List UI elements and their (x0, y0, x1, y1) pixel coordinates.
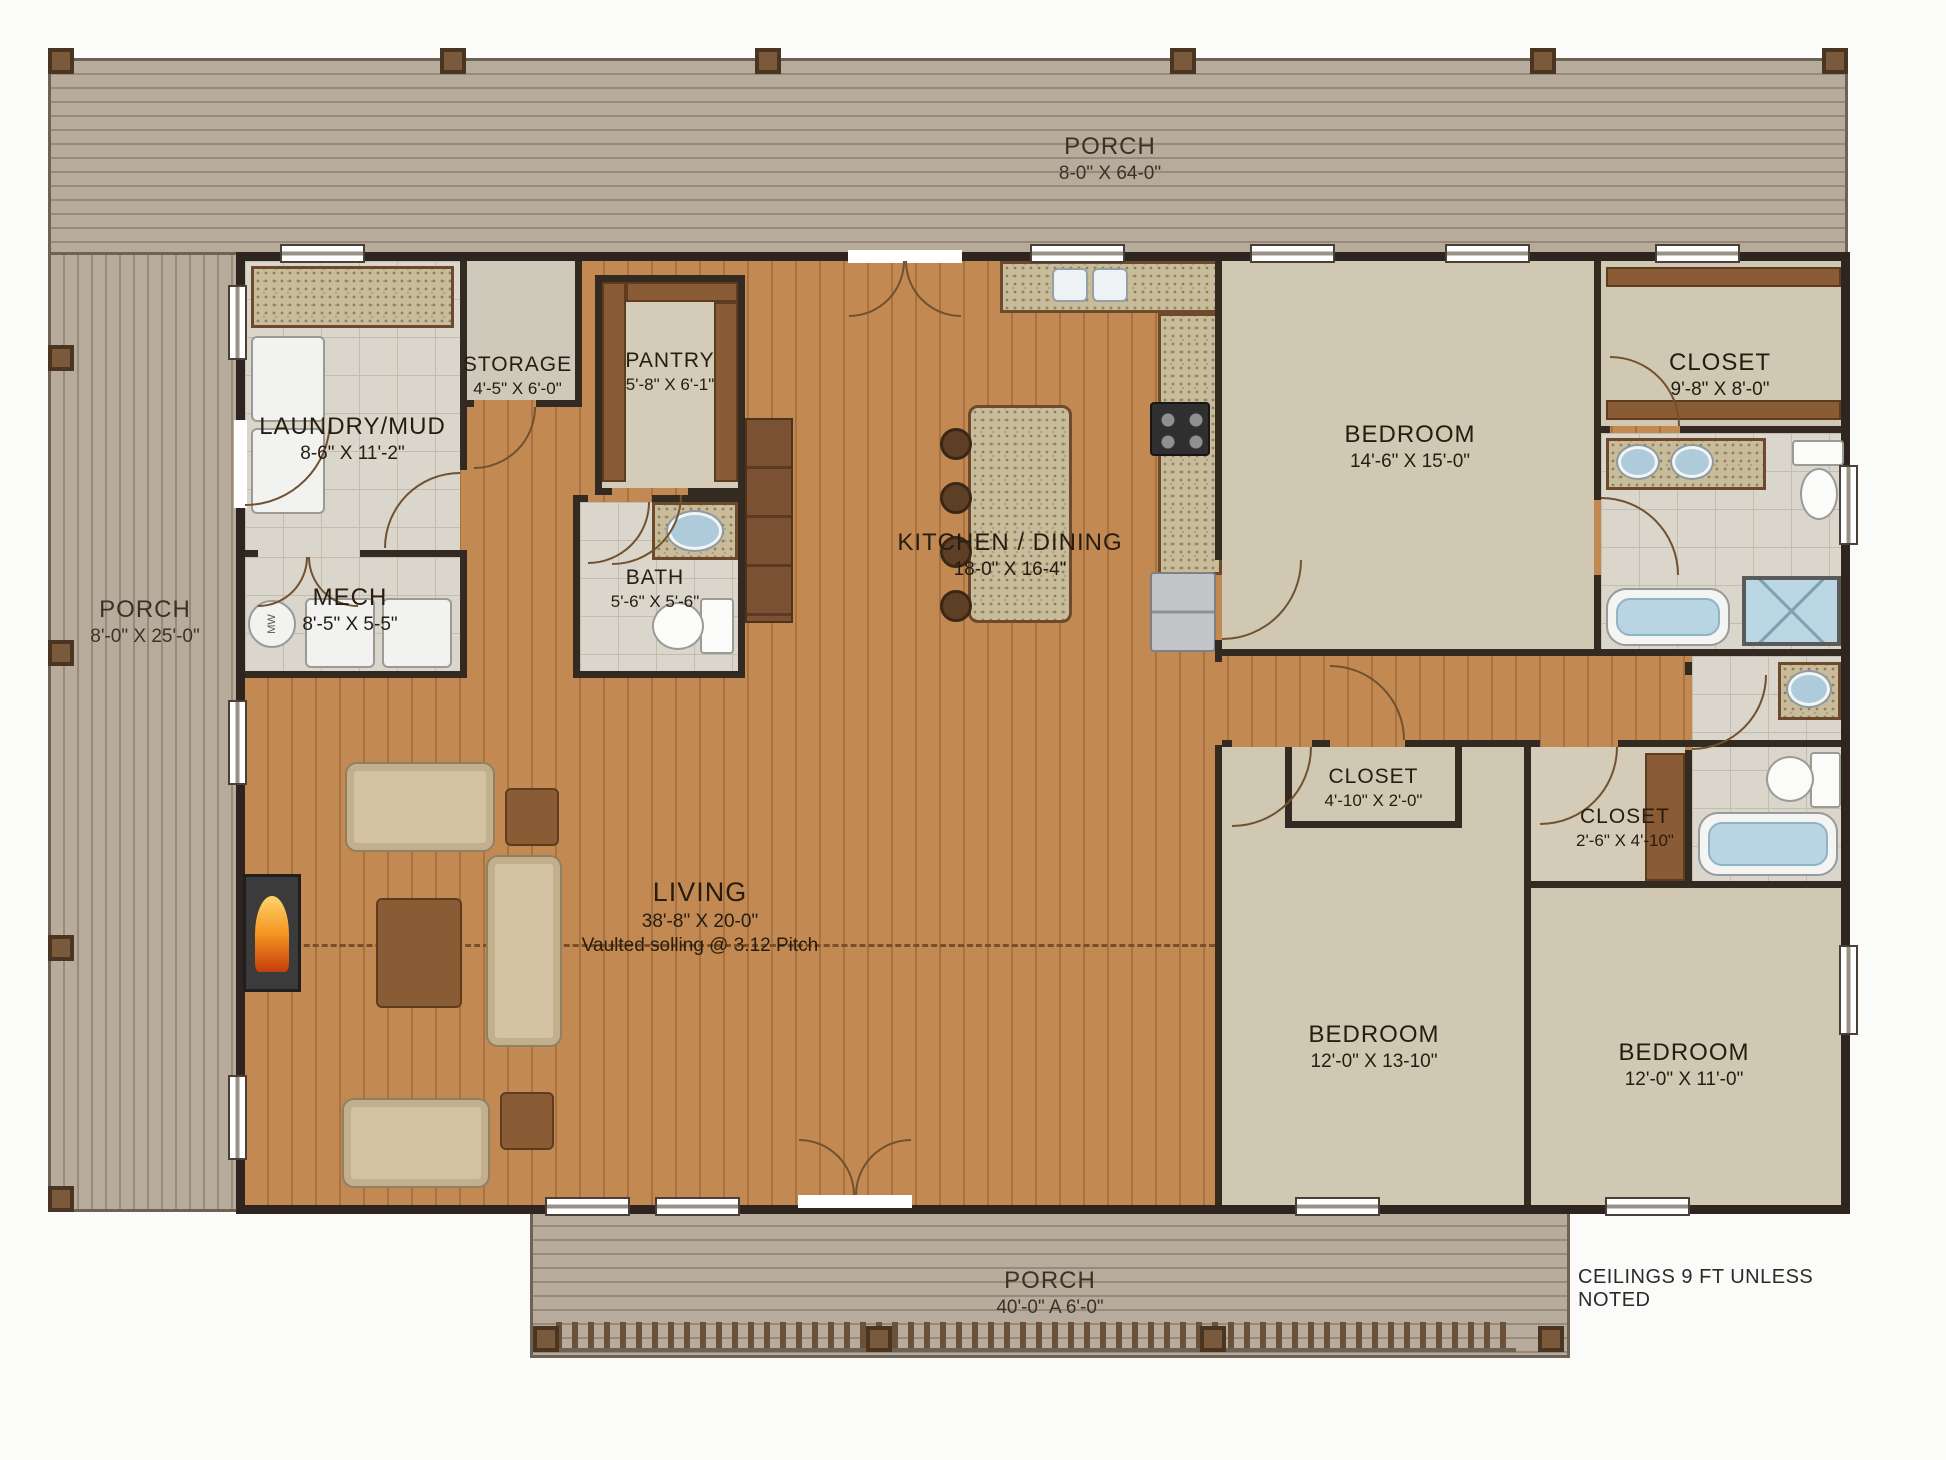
room-dims: 8-6" X 11'-2" (245, 442, 460, 466)
kitchen-sink-basin (1092, 268, 1128, 302)
floor-plan-canvas: MW PORCH 8-0" X 64-0" (0, 0, 1946, 1460)
shower (1742, 576, 1841, 646)
wall (1215, 745, 1222, 1205)
room-dims: 12'-0" X 13-10" (1254, 1050, 1494, 1074)
wall (245, 550, 258, 557)
master-sink (1618, 446, 1658, 478)
pantry-shelf (626, 282, 738, 302)
wall (1222, 740, 1232, 747)
room-name: BEDROOM (1254, 1020, 1494, 1050)
room-name: CLOSET (1620, 348, 1820, 378)
porch-post (533, 1326, 559, 1352)
room-dims: 14'-6" X 15'-0" (1290, 450, 1530, 474)
room-dims: 9'-8" X 8'-0" (1620, 378, 1820, 402)
room-name: CLOSET (1545, 804, 1705, 830)
porch-post (866, 1326, 892, 1352)
porch-post (1538, 1326, 1564, 1352)
wall (738, 495, 745, 678)
room-name: BEDROOM (1290, 420, 1530, 450)
loveseat (345, 762, 495, 852)
room-dims: 8'-5" X 5-5" (250, 613, 450, 637)
refrigerator (1150, 572, 1216, 652)
bathtub (1698, 812, 1838, 876)
wall (573, 671, 745, 678)
wall (595, 275, 745, 282)
room-label-kitchen: KITCHEN / DINING 18-0" X 16-4" (880, 528, 1140, 582)
range (1150, 402, 1210, 456)
porch-post (48, 1186, 74, 1212)
bar-stool (940, 482, 972, 514)
window (545, 1197, 630, 1216)
wall (1680, 426, 1841, 433)
bathtub (1606, 588, 1730, 646)
toilet (1792, 440, 1844, 466)
porch-post (48, 935, 74, 961)
toilet-bowl (1766, 756, 1814, 802)
room-label-closet-master: CLOSET 9'-8" X 8'-0" (1620, 348, 1820, 402)
room-name: CLOSET (1292, 764, 1455, 790)
room-dims: 8-0" X 64-0" (1010, 162, 1210, 186)
bar-stool (940, 590, 972, 622)
porch-post (1170, 48, 1196, 74)
room-label-pantry: PANTRY 5'-8" X 6'-1" (590, 348, 750, 396)
wall (1215, 261, 1222, 560)
wall (1222, 649, 1841, 656)
vaulted-ceiling-note: Vaulted solling @ 3.12 Pitch (560, 934, 840, 958)
wall (1455, 747, 1462, 828)
wall (1405, 740, 1540, 747)
room-name: BEDROOM (1564, 1038, 1804, 1068)
wall (1601, 426, 1610, 433)
window (1839, 945, 1858, 1035)
closet-shelf (1606, 267, 1841, 287)
window (228, 285, 247, 360)
wall (1312, 740, 1330, 747)
room-name: PANTRY (590, 348, 750, 374)
porch-post (440, 48, 466, 74)
room-name: BATH (580, 565, 730, 591)
room-label-porch-left: PORCH 8'-0" X 25'-0" (55, 595, 235, 649)
wall (1285, 821, 1462, 828)
room-dims: 2'-6" X 4'-10" (1545, 830, 1705, 851)
room-name: PORCH (950, 1266, 1150, 1296)
laundry-counter (251, 266, 454, 328)
porch-post (48, 48, 74, 74)
room-dims: 18-0" X 16-4" (880, 558, 1140, 582)
fireplace-flame-icon (255, 896, 289, 972)
room-label-living: LIVING 38'-8" X 20-0" Vaulted solling @ … (560, 876, 840, 957)
room-name: LAUNDRY/MUD (245, 412, 460, 442)
wall (595, 488, 612, 495)
master-sink (1672, 446, 1712, 478)
porch-post (1822, 48, 1848, 74)
room-name: LIVING (560, 876, 840, 910)
side-table (500, 1092, 554, 1150)
room-label-porch-top: PORCH 8-0" X 64-0" (1010, 132, 1210, 186)
room-dims: 5'-6" X 5'-6" (580, 591, 730, 612)
room-label-bedroom-master: BEDROOM 14'-6" X 15'-0" (1290, 420, 1530, 474)
room-label-porch-bottom: PORCH 40'-0" A 6'-0" (950, 1266, 1150, 1320)
wall (1524, 881, 1841, 888)
kitchen-sink-basin (1052, 268, 1088, 302)
room-dims: 4'-5" X 6'-0" (445, 378, 590, 399)
room-dims: 40'-0" A 6'-0" (950, 1296, 1150, 1320)
room-label-bedroom-right: BEDROOM 12'-0" X 11'-0" (1564, 1038, 1804, 1092)
porch-post (1530, 48, 1556, 74)
wall (1618, 740, 1841, 747)
room-label-laundry: LAUNDRY/MUD 8-6" X 11'-2" (245, 412, 460, 466)
window (1250, 244, 1335, 263)
washer (251, 336, 325, 422)
room-name: KITCHEN / DINING (880, 528, 1140, 558)
sofa (486, 855, 562, 1047)
wall (1685, 662, 1692, 675)
room-dims: 5'-8" X 6'-1" (590, 374, 750, 395)
room-name: PORCH (55, 595, 235, 625)
porch-railing (556, 1322, 1516, 1352)
wall (1594, 261, 1601, 500)
wall (1524, 747, 1531, 1205)
coffee-table (376, 898, 462, 1008)
room-label-storage: STORAGE 4'-5" X 6'-0" (445, 352, 590, 400)
kitchen-tall-cabinets (745, 418, 793, 623)
wall (573, 495, 580, 678)
wall (1215, 640, 1222, 662)
window (1445, 244, 1530, 263)
porch-post (1200, 1326, 1226, 1352)
door-opening (798, 1195, 912, 1208)
wall (1594, 575, 1601, 649)
room-dims: 8'-0" X 25'-0" (55, 625, 235, 649)
room-label-mech: MECH 8'-5" X 5-5" (250, 583, 450, 637)
window (1839, 465, 1858, 545)
room-label-closet-bed3: CLOSET 2'-6" X 4'-10" (1545, 804, 1705, 852)
window (280, 244, 365, 263)
room-label-closet-hall: CLOSET 4'-10" X 2'-0" (1292, 764, 1455, 812)
room-name: STORAGE (445, 352, 590, 378)
wall (245, 671, 467, 678)
toilet-bowl (1800, 468, 1838, 520)
room-name: MECH (250, 583, 450, 613)
kitchen-island (968, 405, 1072, 623)
room-label-bath: BATH 5'-6" X 5'-6" (580, 565, 730, 613)
bathtub-basin (1616, 598, 1720, 636)
window (655, 1197, 740, 1216)
bathtub-basin (1708, 822, 1828, 866)
wall (688, 488, 745, 495)
window (228, 700, 247, 785)
hallbath-sink (1788, 672, 1830, 706)
wall (536, 400, 582, 407)
loveseat (342, 1098, 490, 1188)
porch-deck-top (48, 58, 1848, 255)
toilet (1810, 752, 1841, 808)
window (1030, 244, 1125, 263)
wall (360, 550, 460, 557)
room-name: PORCH (1010, 132, 1210, 162)
bar-stool (940, 428, 972, 460)
window (228, 1075, 247, 1160)
window (1295, 1197, 1380, 1216)
porch-post (48, 345, 74, 371)
ceiling-height-note: CEILINGS 9 FT UNLESS NOTED (1578, 1266, 1858, 1312)
window (1605, 1197, 1690, 1216)
wall (460, 400, 474, 407)
room-label-bedroom-mid: BEDROOM 12'-0" X 13-10" (1254, 1020, 1494, 1074)
room-dims: 38'-8" X 20-0" (560, 910, 840, 934)
window (1655, 244, 1740, 263)
porch-post (755, 48, 781, 74)
wall (460, 550, 467, 678)
room-dims: 12'-0" X 11'-0" (1564, 1068, 1804, 1092)
side-table (505, 788, 559, 846)
room-dims: 4'-10" X 2'-0" (1292, 790, 1455, 811)
